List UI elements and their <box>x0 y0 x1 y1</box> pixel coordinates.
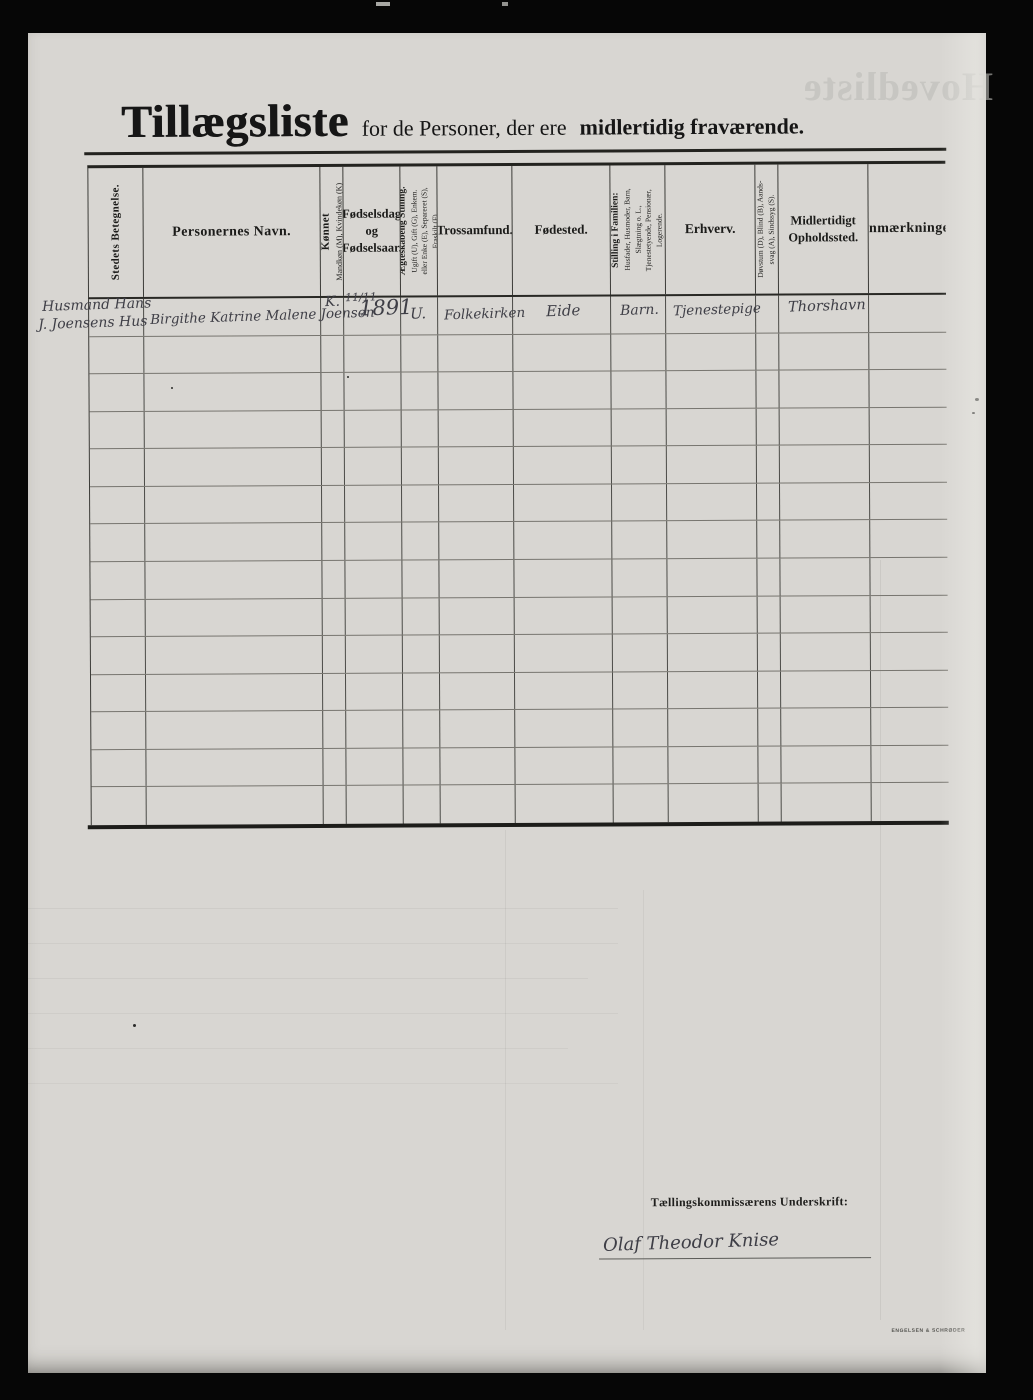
table-cell <box>756 371 779 408</box>
table-cell <box>871 708 948 745</box>
table-cell <box>92 787 147 825</box>
census-table: Stedets Betegnelse. Personernes Navn. Kø… <box>87 161 948 825</box>
table-cell <box>144 336 321 374</box>
table-cell <box>347 786 404 824</box>
column-header-sublabel: eller Enke (E), Separeret (S), <box>421 187 430 274</box>
title-rule <box>84 148 946 156</box>
table-cell <box>440 635 515 672</box>
table-row <box>91 708 948 750</box>
table-cell <box>145 411 322 449</box>
table-cell <box>667 559 757 596</box>
table-cell <box>90 412 145 449</box>
column-header-sublabel: svag (A), Sindssyg (S). <box>767 194 776 264</box>
table-cell <box>613 597 668 634</box>
table-cell <box>780 521 870 558</box>
table-cell <box>439 485 514 522</box>
table-cell <box>441 785 516 823</box>
column-header-label: Døvstum (D), Blind (B), Aands- <box>757 181 766 278</box>
table-row <box>89 370 946 412</box>
table-cell <box>514 409 612 446</box>
table-cell <box>403 598 440 635</box>
table-row <box>90 558 947 600</box>
table-cell <box>612 522 667 559</box>
table-cell <box>611 371 666 408</box>
printed-form: Tillægsliste for de Personer, der ere mi… <box>27 31 992 1376</box>
table-cell <box>145 486 322 524</box>
column-header-anmaerkninger: Anmærkninger <box>868 164 946 293</box>
table-cell <box>756 333 779 370</box>
table-cell <box>439 522 514 559</box>
scan-artifact <box>376 2 390 6</box>
table-cell <box>323 636 346 673</box>
table-cell <box>146 599 323 637</box>
column-header-doevstum: Døvstum (D), Blind (B), Aands- svag (A),… <box>755 165 779 294</box>
table-cell <box>146 749 323 787</box>
table-cell <box>758 671 781 708</box>
table-cell <box>667 484 757 521</box>
table-cell <box>668 671 758 708</box>
table-cell <box>758 746 781 783</box>
table-row <box>90 520 947 562</box>
table-row <box>90 483 947 525</box>
column-header-label: Stedets Betegnelse. <box>109 184 122 280</box>
table-cell <box>145 523 322 561</box>
column-header-stedets-betegnelse: Stedets Betegnelse. <box>88 168 144 297</box>
table-cell <box>668 634 758 671</box>
table-cell <box>146 711 323 748</box>
table-cell <box>779 333 869 370</box>
table-cell <box>515 710 613 747</box>
table-cell <box>514 447 612 484</box>
table-cell <box>869 332 946 369</box>
table-cell <box>403 711 440 748</box>
scanned-census-page: Hovedliste Tillægsliste for de Personer,… <box>0 0 1033 1400</box>
table-cell <box>345 485 402 522</box>
table-cell <box>612 446 667 483</box>
table-cell <box>871 746 948 783</box>
table-cell <box>515 635 613 672</box>
table-cell <box>321 373 344 410</box>
table-cell <box>146 636 323 673</box>
table-cell <box>757 559 780 596</box>
table-body <box>88 295 949 825</box>
table-cell <box>438 372 513 409</box>
table-cell <box>668 709 758 746</box>
table-cell <box>90 449 145 486</box>
table-cell <box>782 784 872 822</box>
column-header-midlertidigt-opholdssted: Midlertidigt Opholdssted. <box>778 164 869 293</box>
table-cell <box>403 636 440 673</box>
table-cell <box>440 748 515 785</box>
entry-foedested: Eide <box>546 301 581 320</box>
table-cell <box>345 523 402 560</box>
table-cell <box>611 334 666 371</box>
table-cell <box>402 523 439 560</box>
table-cell <box>514 484 612 521</box>
table-cell <box>403 748 440 785</box>
column-header-label: Ægteskabelig Stilling. <box>400 187 408 276</box>
table-cell <box>669 784 759 822</box>
table-cell <box>515 672 613 709</box>
entry-aegteskabelig-stilling: U. <box>410 304 427 323</box>
table-cell <box>667 521 757 558</box>
column-header-sublabel: Logerende. <box>656 213 665 247</box>
table-cell <box>402 485 439 522</box>
table-cell <box>323 711 346 748</box>
table-cell <box>323 749 346 786</box>
table-cell <box>322 411 345 448</box>
table-cell <box>667 408 757 445</box>
table-cell <box>612 484 667 521</box>
table-cell <box>91 750 146 787</box>
table-cell <box>780 558 870 595</box>
table-cell <box>323 674 346 711</box>
table-cell <box>440 598 515 635</box>
form-title: Tillægsliste for de Personer, der ere mi… <box>121 91 804 148</box>
table-cell <box>614 785 669 823</box>
table-cell <box>404 786 441 824</box>
entry-erhverv: Tjenestepige <box>673 300 761 319</box>
column-header-erhverv: Erhverv. <box>665 165 756 294</box>
table-cell <box>758 709 781 746</box>
table-cell <box>758 596 781 633</box>
table-cell <box>514 522 612 559</box>
table-cell <box>870 520 947 557</box>
table-cell <box>91 675 146 712</box>
table-cell <box>870 558 947 595</box>
table-row <box>92 783 949 825</box>
table-cell <box>869 370 946 407</box>
table-cell <box>344 373 401 410</box>
table-cell <box>870 407 947 444</box>
table-cell <box>440 673 515 710</box>
table-row <box>91 746 948 788</box>
table-cell <box>439 560 514 597</box>
table-cell <box>781 708 871 745</box>
table-cell <box>613 747 668 784</box>
table-cell <box>757 446 780 483</box>
table-cell <box>781 671 871 708</box>
table-cell <box>439 447 514 484</box>
column-header-aegteskabelig-stilling: Ægteskabelig Stilling. Ugift (U), Gift (… <box>400 166 438 295</box>
column-header-sublabel: Slægtning o. L., <box>634 206 643 254</box>
table-row <box>89 332 946 374</box>
table-cell <box>781 633 871 670</box>
table-cell <box>90 487 145 524</box>
table-cell <box>613 709 668 746</box>
table-cell <box>613 672 668 709</box>
table-cell <box>667 446 757 483</box>
column-header-sublabel: Husfader, Husmoder, Barn, <box>624 189 633 271</box>
table-cell <box>323 598 346 635</box>
table-cell <box>440 710 515 747</box>
table-cell <box>758 634 781 671</box>
table-cell <box>322 561 345 598</box>
table-row <box>91 670 948 712</box>
table-cell <box>322 523 345 560</box>
table-cell <box>668 747 758 784</box>
table-cell <box>145 561 322 598</box>
table-cell <box>613 634 668 671</box>
table-cell <box>346 598 403 635</box>
column-header-label: Kønnet <box>320 213 332 250</box>
table-cell <box>90 562 145 599</box>
signature-label: Tællingskommissærens Underskrift: <box>651 1194 848 1210</box>
table-cell <box>346 673 403 710</box>
table-cell <box>403 673 440 710</box>
table-cell <box>666 333 756 370</box>
table-cell <box>757 521 780 558</box>
table-row <box>91 633 948 675</box>
scan-artifact <box>502 2 508 6</box>
table-cell <box>346 636 403 673</box>
table-cell <box>513 334 611 371</box>
paper-edge-highlight <box>940 33 986 1373</box>
table-cell <box>89 374 144 411</box>
entry-midlertidigt-opholdssted: Thorshavn <box>788 297 866 316</box>
entry-koennet: K. <box>325 294 340 310</box>
signature-line <box>599 1257 871 1260</box>
column-header-sublabel: Ugift (U), Gift (G), Enkem. <box>410 189 419 272</box>
table-cell <box>344 335 401 372</box>
table-cell <box>516 785 614 823</box>
table-cell <box>871 633 948 670</box>
table-cell <box>870 483 947 520</box>
table-cell <box>322 448 345 485</box>
table-cell <box>322 486 345 523</box>
table-cell <box>346 748 403 785</box>
entry-foedselsaar: 1891 <box>359 295 413 321</box>
table-header-row: Stedets Betegnelse. Personernes Navn. Kø… <box>87 161 946 299</box>
table-cell <box>612 409 667 446</box>
table-cell <box>612 559 667 596</box>
table-cell <box>781 746 871 783</box>
form-title-main: Tillægsliste <box>121 94 349 148</box>
table-cell <box>91 712 146 749</box>
table-cell <box>757 408 780 445</box>
column-header-foedselsdag: Fødselsdag og Fødselsaar. <box>343 167 401 296</box>
table-cell <box>401 373 438 410</box>
column-header-koennet: Kønnet Mandkøn (M), Kvindekøn (K) <box>320 167 344 296</box>
table-cell <box>91 637 146 674</box>
table-cell <box>402 448 439 485</box>
table-cell <box>147 786 324 825</box>
form-title-subtitle-bold: midlertidig fraværende. <box>580 113 805 140</box>
entry-stilling-i-familien: Barn. <box>620 302 659 319</box>
table-cell <box>515 597 613 634</box>
paper-sheet: Hovedliste Tillægsliste for de Personer,… <box>28 33 986 1373</box>
table-cell <box>666 371 756 408</box>
entry-trossamfund: Folkekirken <box>444 305 526 324</box>
table-cell <box>869 295 946 332</box>
table-cell <box>781 596 871 633</box>
table-cell <box>145 448 322 485</box>
column-header-sublabel: Mandkøn (M), Kvindekøn (K) <box>334 182 344 280</box>
table-cell <box>780 483 870 520</box>
table-cell <box>345 448 402 485</box>
table-cell <box>514 559 612 596</box>
table-cell <box>144 373 321 410</box>
column-header-foedested: Fødested. <box>512 165 611 295</box>
table-cell <box>89 336 144 373</box>
column-header-sublabel: Tjenestetyende, Pensionær, <box>645 189 654 271</box>
table-cell <box>513 372 611 409</box>
table-cell <box>870 445 947 482</box>
table-cell <box>402 410 439 447</box>
table-cell <box>401 335 438 372</box>
table-cell <box>438 335 513 372</box>
table-cell <box>871 595 948 632</box>
table-cell <box>321 335 344 372</box>
column-header-stilling-i-familien: Stilling i Familien: Husfader, Husmoder,… <box>610 165 666 294</box>
column-header-label: Stilling i Familien: <box>611 192 622 268</box>
column-header-personernes-navn: Personernes Navn. <box>143 167 321 297</box>
table-cell <box>757 483 780 520</box>
table-cell <box>780 445 870 482</box>
table-row <box>90 445 947 487</box>
form-title-subtitle: for de Personer, der ere <box>362 115 567 142</box>
signature-name: Olaf Theodor Knise <box>603 1229 780 1256</box>
table-cell <box>146 674 323 712</box>
table-cell <box>780 408 870 445</box>
table-cell <box>515 747 613 784</box>
table-cell <box>871 670 948 707</box>
table-cell <box>668 596 758 633</box>
table-cell <box>439 410 514 447</box>
table-cell <box>345 561 402 598</box>
table-cell <box>759 784 782 822</box>
table-cell <box>91 599 146 636</box>
table-cell <box>346 711 403 748</box>
column-header-trossamfund: Trossamfund. <box>437 166 513 295</box>
table-cell <box>872 783 949 821</box>
table-row <box>91 595 948 637</box>
table-cell <box>402 560 439 597</box>
table-cell <box>779 370 869 407</box>
table-cell <box>90 524 145 561</box>
table-row <box>90 407 947 449</box>
table-cell <box>345 410 402 447</box>
table-cell <box>324 786 347 824</box>
